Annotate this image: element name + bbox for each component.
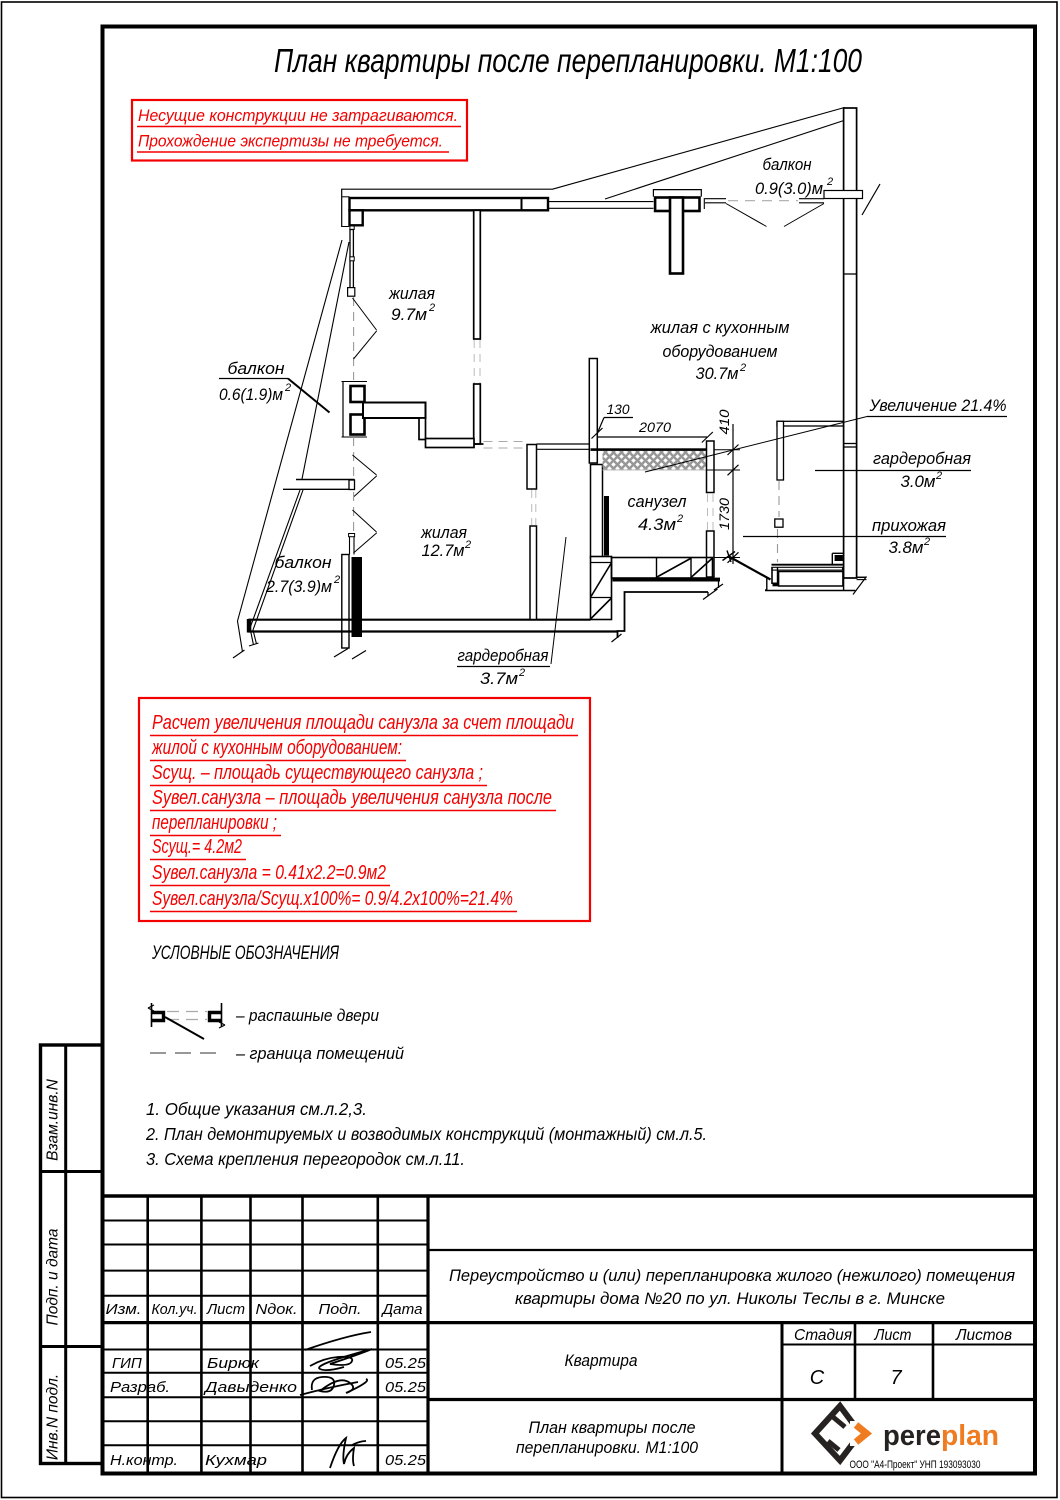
- svg-text:балкон: балкон: [763, 155, 813, 174]
- svg-text:гардеробная: гардеробная: [873, 449, 971, 468]
- svg-text:перепланировки ;: перепланировки ;: [152, 812, 277, 834]
- svg-text:Взам.инв.N: Взам.инв.N: [45, 1078, 62, 1160]
- svg-text:Квартира: Квартира: [565, 1351, 638, 1370]
- svg-text:Увеличение 21.4%: Увеличение 21.4%: [869, 396, 1007, 415]
- svg-text:3. Схема крепления перегородо: 3. Схема крепления перегородок см.л.11.: [146, 1149, 465, 1169]
- svg-text:2: 2: [739, 362, 746, 374]
- svg-text:Sсущ. – площадь существующего: Sсущ. – площадь существующего санузла ;: [152, 762, 483, 784]
- svg-text:2: 2: [333, 574, 340, 586]
- svg-text:2: 2: [518, 667, 525, 679]
- svg-text:Н.контр.: Н.контр.: [110, 1452, 178, 1469]
- svg-text:Подп. и дата: Подп. и дата: [45, 1228, 62, 1325]
- svg-text:балкон: балкон: [275, 553, 333, 572]
- svg-text:0.6(1.9)м: 0.6(1.9)м: [219, 385, 283, 404]
- svg-text:гардеробная: гардеробная: [458, 646, 549, 665]
- svg-text:санузел: санузел: [628, 492, 687, 511]
- svg-text:– распашные двери: – распашные двери: [235, 1006, 379, 1025]
- svg-text:05.25: 05.25: [385, 1452, 427, 1469]
- svg-text:2: 2: [923, 536, 930, 548]
- svg-text:2: 2: [826, 176, 833, 188]
- svg-text:прихожая: прихожая: [872, 516, 946, 535]
- svg-text:– граница помещений: – граница помещений: [235, 1044, 404, 1063]
- svg-text:3.0м: 3.0м: [901, 472, 936, 491]
- svg-text:Инв.N подл.: Инв.N подл.: [45, 1374, 62, 1460]
- svg-text:05.25: 05.25: [385, 1355, 427, 1372]
- svg-text:2070: 2070: [638, 420, 672, 435]
- svg-text:7: 7: [890, 1367, 902, 1389]
- svg-text:4.3м: 4.3м: [638, 515, 676, 534]
- svg-text:Переустройство и (или) перепла: Переустройство и (или) перепланировка жи…: [449, 1267, 1015, 1285]
- svg-text:2: 2: [935, 470, 942, 482]
- svg-text:pere: pere: [883, 1420, 941, 1452]
- svg-text:30.7м: 30.7м: [696, 364, 739, 383]
- svg-text:УСЛОВНЫЕ ОБОЗНАЧЕНИЯ: УСЛОВНЫЕ ОБОЗНАЧЕНИЯ: [151, 943, 339, 964]
- svg-text:Прохождение экспертизы не треб: Прохождение экспертизы не требуется.: [138, 133, 443, 151]
- svg-text:Nдок.: Nдок.: [256, 1301, 298, 1318]
- svg-text:жилая с кухонным: жилая с кухонным: [650, 318, 790, 337]
- svg-text:Кухмар: Кухмар: [205, 1452, 267, 1469]
- svg-text:2: 2: [284, 382, 291, 394]
- svg-text:9.7м: 9.7м: [391, 305, 427, 324]
- svg-text:2: 2: [464, 539, 471, 551]
- svg-text:2.7(3.9)м: 2.7(3.9)м: [265, 577, 332, 596]
- svg-text:перепланировки. М1:100: перепланировки. М1:100: [516, 1439, 699, 1457]
- svg-text:План квартиры после: План квартиры после: [529, 1419, 696, 1437]
- svg-text:1730: 1730: [717, 497, 732, 530]
- svg-text:2: 2: [676, 513, 683, 525]
- svg-text:3.7м: 3.7м: [480, 669, 518, 688]
- svg-text:05.25: 05.25: [385, 1379, 427, 1396]
- svg-text:Подп.: Подп.: [319, 1301, 362, 1318]
- svg-text:квартиры дома №20 по ул. Никол: квартиры дома №20 по ул. Николы Теслы в …: [515, 1290, 945, 1308]
- svg-text:План квартиры после переплани: План квартиры после перепланировки. М1:1…: [274, 42, 863, 79]
- svg-text:жилая: жилая: [388, 284, 435, 303]
- svg-text:2: 2: [428, 302, 435, 314]
- svg-text:Давыденко: Давыденко: [203, 1379, 297, 1396]
- svg-text:Несущие конструкции не затраги: Несущие конструкции не затрагиваются.: [138, 107, 458, 125]
- svg-text:Листов: Листов: [955, 1327, 1012, 1344]
- svg-text:Кол.уч.: Кол.уч.: [152, 1301, 198, 1318]
- svg-text:С: С: [810, 1367, 825, 1389]
- svg-text:12.7м: 12.7м: [422, 541, 465, 560]
- svg-text:1. Общие указания см.л.2,3.: 1. Общие указания см.л.2,3.: [146, 1099, 367, 1119]
- svg-text:ГИП: ГИП: [112, 1355, 142, 1372]
- svg-text:оборудованием: оборудованием: [663, 342, 778, 361]
- svg-text:0.9(3.0)м: 0.9(3.0)м: [755, 179, 823, 198]
- svg-text:балкон: балкон: [228, 359, 286, 378]
- svg-text:жилая: жилая: [420, 523, 467, 542]
- svg-text:2. План демонтируемых и возво: 2. План демонтируемых и возводимых конст…: [145, 1124, 707, 1144]
- svg-text:Изм.: Изм.: [106, 1301, 142, 1318]
- svg-text:130: 130: [607, 402, 630, 417]
- svg-text:410: 410: [717, 409, 732, 435]
- svg-text:Дата: Дата: [380, 1301, 422, 1318]
- svg-text:Бирюк: Бирюк: [207, 1355, 260, 1372]
- svg-text:Sувел.санузла – площадь увелич: Sувел.санузла – площадь увеличения сануз…: [152, 787, 552, 809]
- svg-text:Sувел.санузла = 0.41х2.2=0.9м2: Sувел.санузла = 0.41х2.2=0.9м2: [152, 862, 386, 884]
- svg-text:ООО "А4-Проект" УНП 193093030: ООО "А4-Проект" УНП 193093030: [850, 1459, 981, 1471]
- svg-text:plan: plan: [941, 1420, 999, 1452]
- svg-text:Лист: Лист: [874, 1327, 912, 1344]
- svg-text:Sсущ.= 4.2м2: Sсущ.= 4.2м2: [152, 836, 242, 858]
- svg-text:Расчет увеличения площади сану: Расчет увеличения площади санузла за сче…: [152, 712, 574, 734]
- svg-text:Sувел.санузла/Sсущ.х100%= 0.9/: Sувел.санузла/Sсущ.х100%= 0.9/4.2х100%=2…: [152, 888, 513, 910]
- svg-text:Разраб.: Разраб.: [110, 1379, 170, 1396]
- svg-text:3.8м: 3.8м: [889, 538, 924, 557]
- svg-text:Стадия: Стадия: [794, 1327, 852, 1344]
- svg-text:Лист: Лист: [206, 1301, 245, 1318]
- svg-text:жилой с кухонным оборудованием: жилой с кухонным оборудованием:: [151, 737, 402, 759]
